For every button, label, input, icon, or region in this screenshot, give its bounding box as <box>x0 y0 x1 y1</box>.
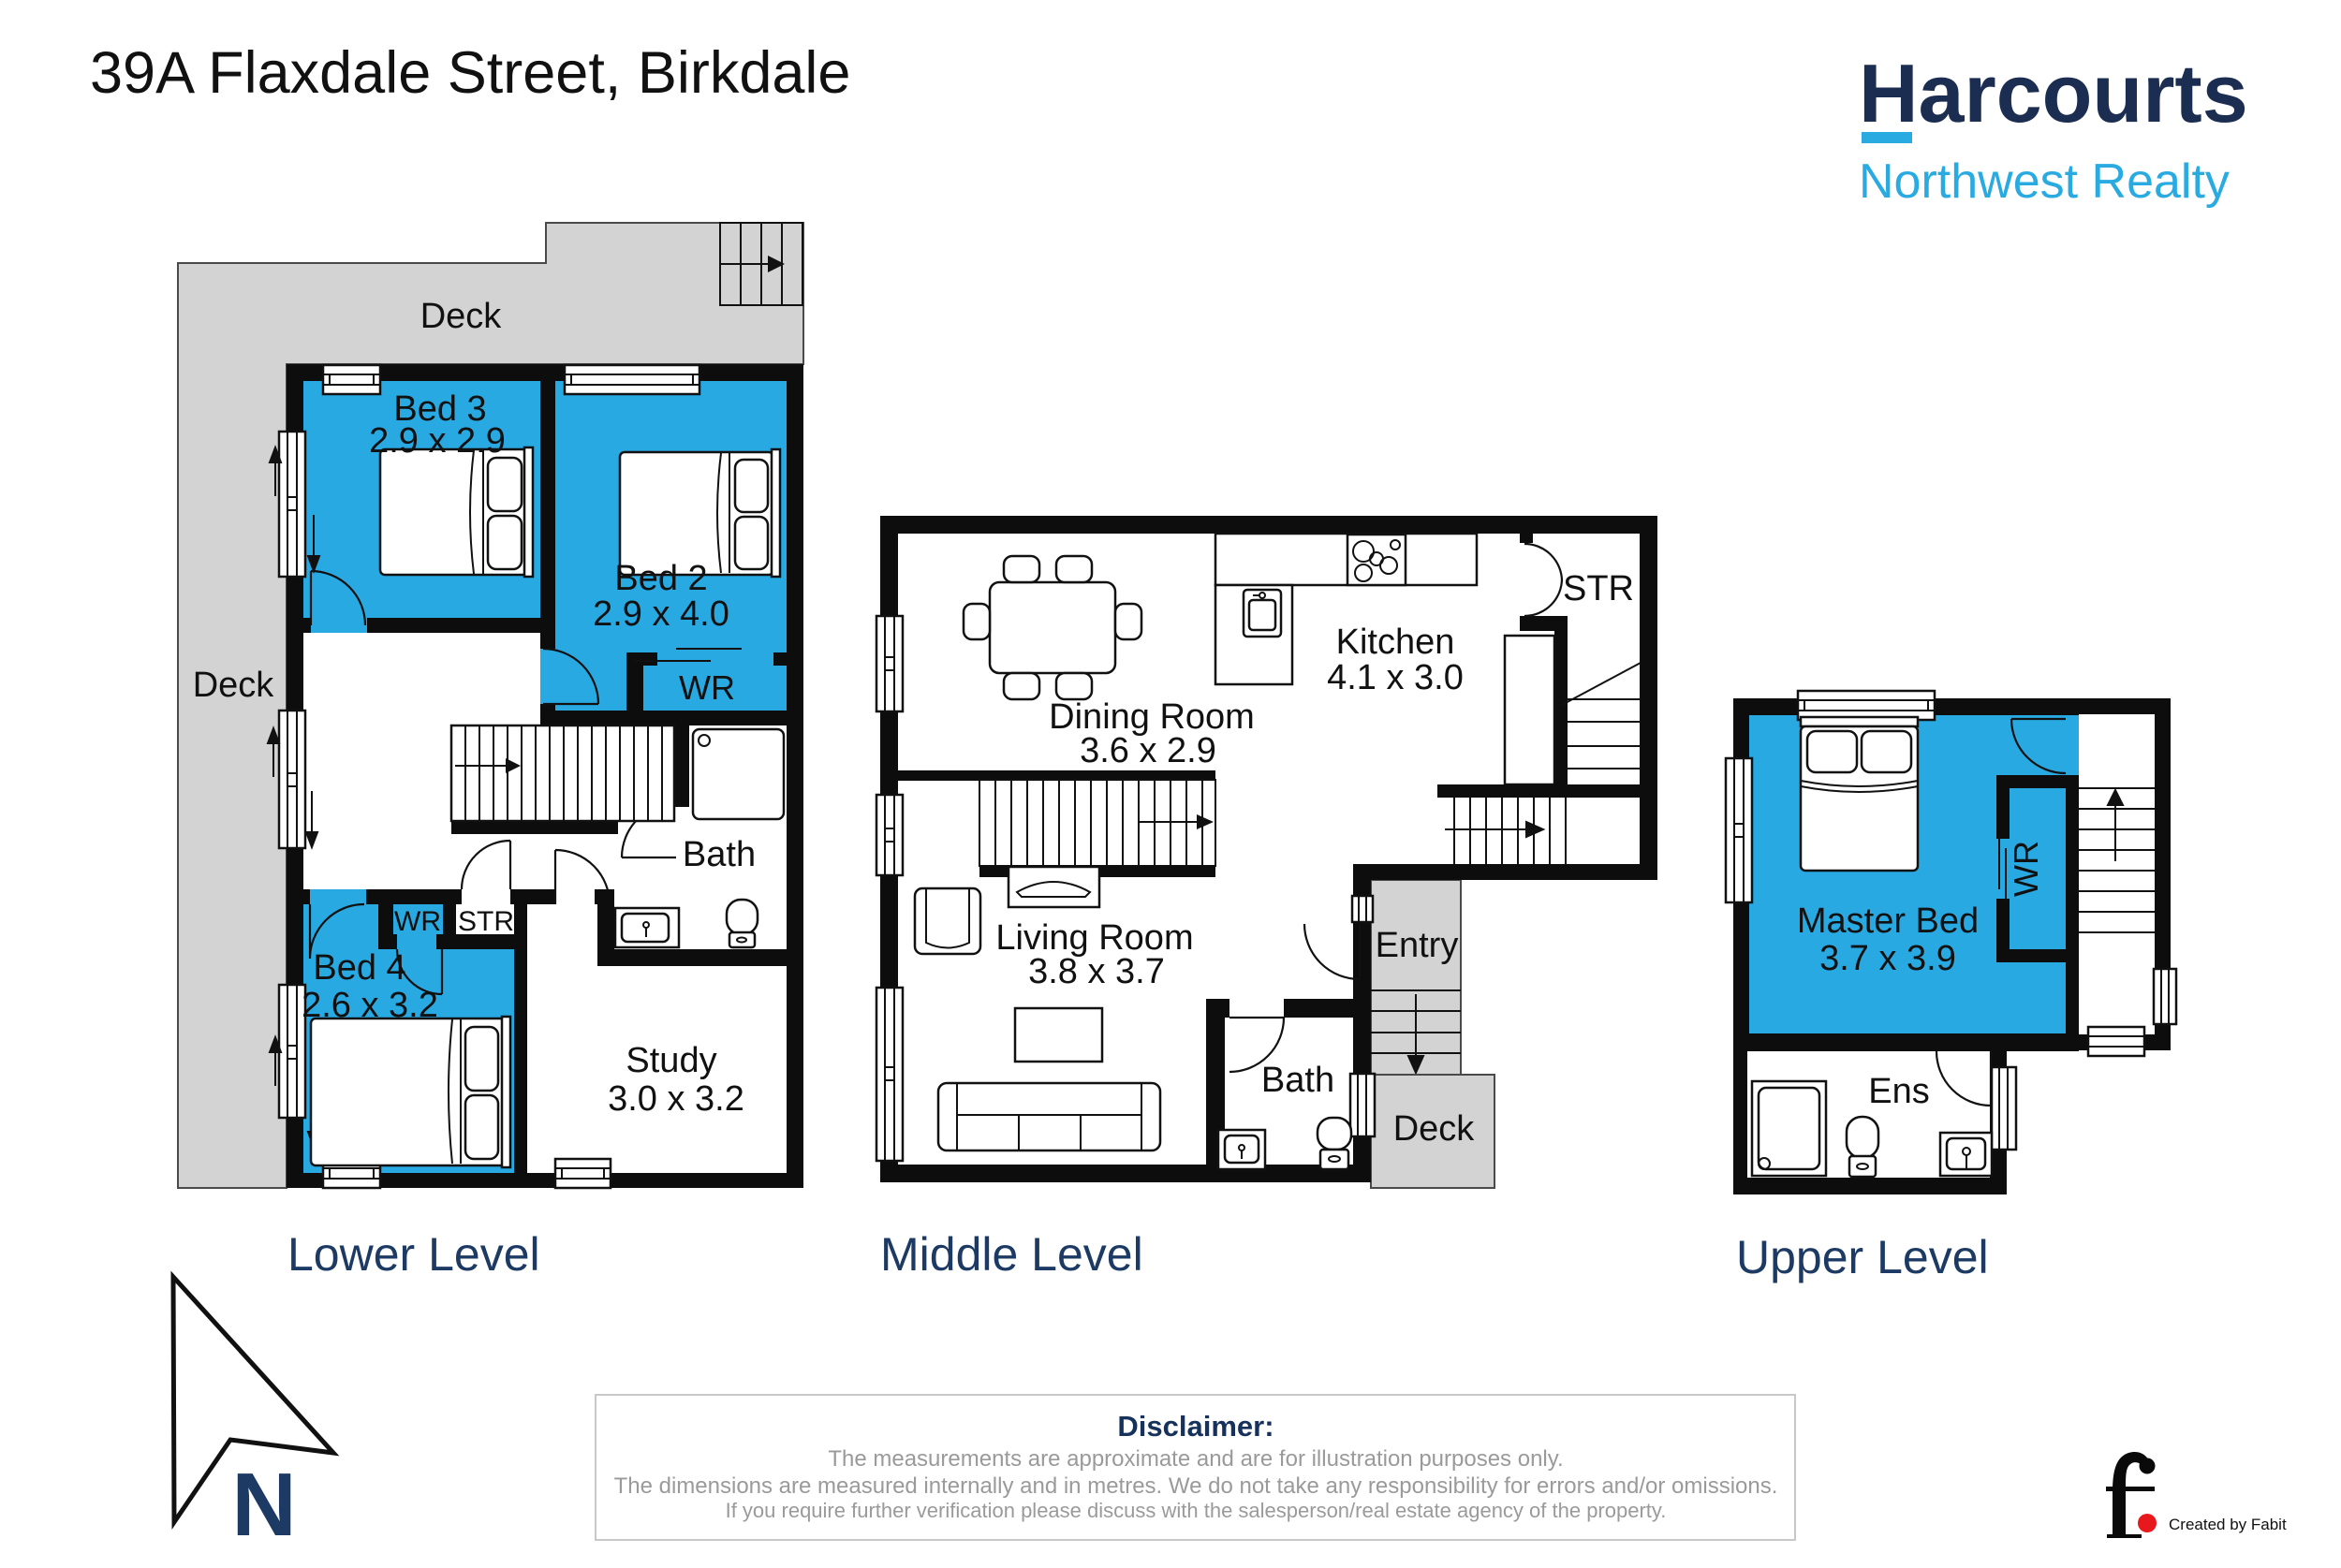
svg-text:39A Flaxdale Street, Birkdale: 39A Flaxdale Street, Birkdale <box>90 40 850 106</box>
svg-text:3.7 x 3.9: 3.7 x 3.9 <box>1819 939 1956 978</box>
svg-text:WR: WR <box>394 906 441 937</box>
svg-text:Bed 4: Bed 4 <box>313 948 405 988</box>
svg-text:Entry: Entry <box>1376 926 1459 965</box>
svg-text:Bed 2: Bed 2 <box>614 559 707 598</box>
svg-text:N: N <box>231 1455 296 1555</box>
svg-text:Deck: Deck <box>1393 1109 1476 1149</box>
svg-text:Kitchen: Kitchen <box>1336 623 1455 662</box>
svg-text:Deck: Deck <box>420 297 503 336</box>
svg-text:Bath: Bath <box>1261 1061 1334 1100</box>
svg-text:If you require further verific: If you require further verification plea… <box>726 1499 1667 1522</box>
svg-text:The dimensions are measured in: The dimensions are measured internally a… <box>614 1473 1778 1499</box>
svg-text:Master Bed: Master Bed <box>1797 901 1979 941</box>
svg-text:STR: STR <box>458 906 514 937</box>
svg-text:Harcourts: Harcourts <box>1859 47 2248 139</box>
svg-text:Lower Level: Lower Level <box>287 1228 540 1281</box>
svg-text:Upper Level: Upper Level <box>1736 1231 1989 1283</box>
svg-text:Ens: Ens <box>1868 1072 1929 1111</box>
svg-text:STR: STR <box>1563 569 1634 608</box>
svg-text:Study: Study <box>626 1041 716 1080</box>
svg-text:Northwest Realty: Northwest Realty <box>1859 154 2230 209</box>
svg-text:WR: WR <box>679 668 735 707</box>
svg-text:The measurements are approxima: The measurements are approximate and are… <box>828 1446 1563 1472</box>
svg-text:2.6 x 3.2: 2.6 x 3.2 <box>302 986 438 1025</box>
svg-text:Deck: Deck <box>193 666 275 705</box>
svg-text:3.8 x 3.7: 3.8 x 3.7 <box>1028 952 1165 991</box>
svg-text:2.9 x 2.9: 2.9 x 2.9 <box>369 421 506 461</box>
svg-text:Created by Fabit: Created by Fabit <box>2169 1516 2287 1533</box>
svg-text:3.6 x 2.9: 3.6 x 2.9 <box>1080 731 1216 770</box>
svg-text:4.1 x 3.0: 4.1 x 3.0 <box>1327 658 1464 697</box>
svg-text:WR: WR <box>2007 841 2045 897</box>
svg-text:Bath: Bath <box>683 835 756 874</box>
svg-text:3.0 x 3.2: 3.0 x 3.2 <box>608 1079 744 1119</box>
svg-text:Disclaimer:: Disclaimer: <box>1117 1410 1274 1443</box>
svg-text:2.9 x 4.0: 2.9 x 4.0 <box>593 594 729 634</box>
svg-text:Middle Level: Middle Level <box>880 1228 1143 1281</box>
